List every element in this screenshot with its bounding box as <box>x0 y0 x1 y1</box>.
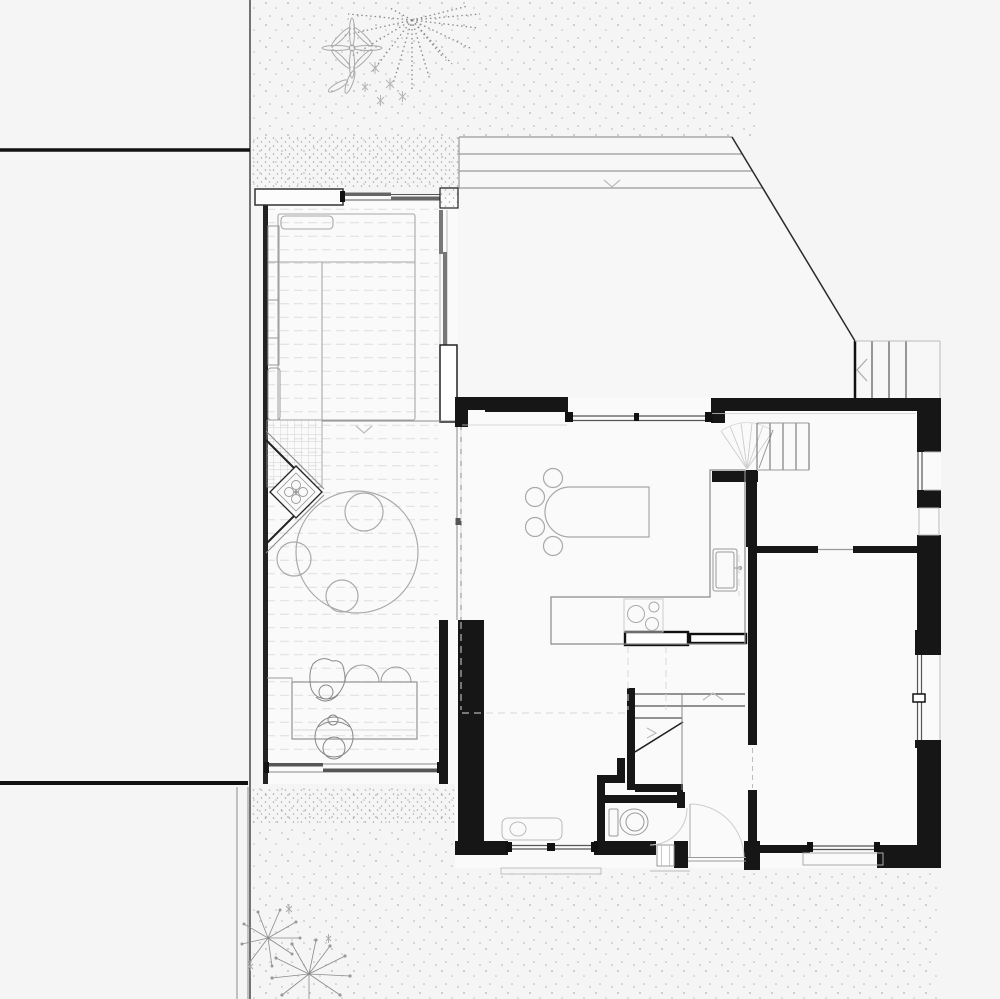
wall-wc-west <box>597 777 605 845</box>
wall-stair-south <box>635 784 683 792</box>
wall-south-d <box>758 845 810 853</box>
terrace-floor <box>459 137 855 400</box>
gravel-dense-band-north <box>250 137 459 188</box>
wall-east-2 <box>917 490 941 508</box>
wall-kitchen-room-b <box>748 790 757 845</box>
gravel-north-east <box>459 0 759 137</box>
exterior-stair-floor <box>855 341 940 400</box>
wall-upper-room-south-b <box>853 546 930 553</box>
door-pane <box>268 763 323 767</box>
door-pane <box>323 769 439 773</box>
wall-east-6 <box>917 748 941 852</box>
window-pane <box>443 252 447 346</box>
floor-plan-canvas: Ground floor plan: house with veranda an… <box>0 0 1000 999</box>
window-pane <box>345 193 391 197</box>
window-pane <box>391 197 440 201</box>
window-pane <box>439 210 443 254</box>
wall-south-a <box>455 841 508 855</box>
wall-south-east <box>877 845 941 868</box>
annex-board-pattern <box>268 205 438 421</box>
masonry-pier <box>440 188 458 208</box>
wall-upper-room-south-a <box>756 546 818 553</box>
annex-west-wall <box>263 196 268 784</box>
wall-wc-north <box>603 795 685 803</box>
wall-north-b <box>711 398 941 411</box>
floor-fills <box>265 137 941 868</box>
wc-window <box>657 845 674 866</box>
annex-east-wall-stub <box>440 345 457 422</box>
wall-west <box>458 620 484 843</box>
wall-south-c <box>744 841 760 870</box>
wall-east-4 <box>915 630 941 655</box>
wall-east-1 <box>917 404 941 452</box>
wall-under-stair <box>712 471 758 482</box>
annex-north-wall <box>255 189 343 205</box>
gravel-south <box>455 872 941 999</box>
wall-stair-west <box>627 688 635 790</box>
wall-east-5 <box>915 740 941 748</box>
gravel-dense-band-south <box>250 787 455 825</box>
property-boundaries <box>0 0 250 999</box>
deck-east-wall <box>439 620 448 784</box>
window-latch <box>913 694 925 702</box>
house-floor <box>455 397 941 868</box>
under-counter-walls <box>625 632 746 645</box>
wall-north-a <box>485 397 568 412</box>
wall-kitchen-room-a <box>748 547 757 745</box>
floor-plan-drawing: Ground floor plan: house with veranda an… <box>0 0 1000 999</box>
wall-wc-east <box>677 792 685 808</box>
